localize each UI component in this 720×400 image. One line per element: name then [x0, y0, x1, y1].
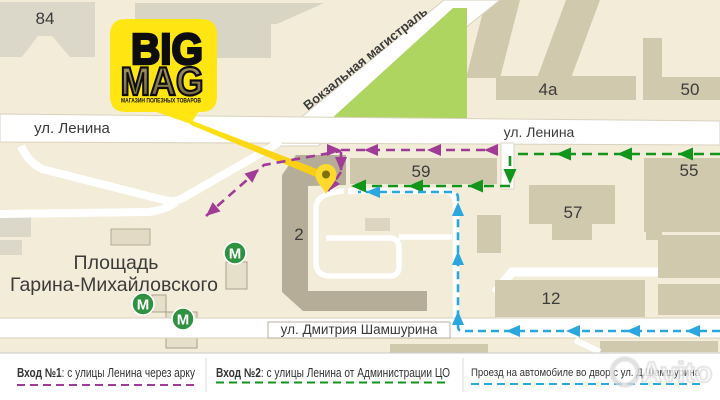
svg-text:МАГАЗИН ПОЛЕЗНЫХ ТОВАРОВ: МАГАЗИН ПОЛЕЗНЫХ ТОВАРОВ	[121, 99, 202, 105]
svg-text:ул. Ленина: ул. Ленина	[504, 124, 575, 140]
svg-text:2: 2	[294, 225, 303, 244]
svg-text:4а: 4а	[539, 80, 558, 99]
svg-text:84: 84	[36, 9, 55, 28]
svg-text:50: 50	[681, 80, 700, 99]
svg-text:Площадь: Площадь	[74, 252, 159, 274]
svg-text:Гарина-Михайловского: Гарина-Михайловского	[10, 274, 218, 296]
svg-text:57: 57	[564, 203, 583, 222]
svg-text:Avito: Avito	[641, 357, 712, 389]
svg-text:М: М	[229, 246, 242, 263]
svg-text:М: М	[137, 297, 150, 314]
svg-text:55: 55	[680, 161, 699, 180]
svg-text:12: 12	[542, 289, 561, 308]
svg-text:MAG: MAG	[121, 60, 204, 104]
svg-text:59: 59	[412, 162, 431, 181]
svg-text:Вход №1: с улицы Ленина через: Вход №1: с улицы Ленина через арку	[17, 366, 196, 380]
svg-text:М: М	[177, 312, 190, 329]
svg-text:ул. Дмитрия Шамшурина: ул. Дмитрия Шамшурина	[281, 322, 438, 337]
svg-text:ул. Ленина: ул. Ленина	[34, 120, 110, 137]
svg-text:Вход №2: с улицы Ленина от Ад: Вход №2: с улицы Ленина от Администрации…	[216, 366, 450, 380]
